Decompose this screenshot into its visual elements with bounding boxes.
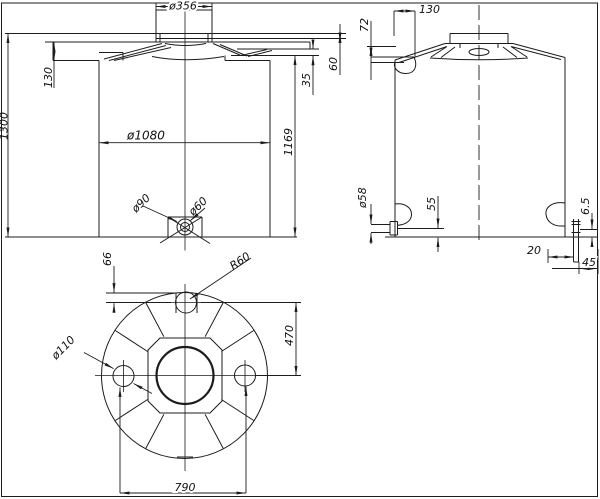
drawing-canvas: ø356 1300 130 ø1080 1169 35 60 ø90 ø60 1… [0, 0, 600, 499]
side-view: 130 72 ø58 55 6.5 20 45 [356, 3, 598, 274]
dim-35-label: 35 [300, 73, 313, 87]
dim-790-label: 790 [175, 481, 196, 494]
dim-72-label: 72 [358, 18, 371, 32]
dim-side130-label: 130 [419, 3, 440, 16]
dim-55-label: 55 [425, 197, 438, 211]
dim-dia58-label: ø58 [356, 187, 369, 209]
side-outline [371, 34, 581, 263]
dim-60-label: 60 [327, 57, 340, 71]
dim-r60-label: R60 [227, 250, 252, 273]
dim-66-label: 66 [101, 252, 114, 266]
front-view: ø356 1300 130 ø1080 1169 35 60 ø90 ø60 [0, 0, 346, 251]
dim-1169-label: 1169 [282, 128, 295, 156]
dim-dia1080-label: ø1080 [126, 129, 165, 143]
dim-20-label: 20 [527, 244, 541, 257]
dim-1300-label: 1300 [0, 112, 11, 140]
leader-dia110-b [134, 384, 153, 394]
dim-dia356-label: ø356 [168, 0, 197, 13]
dim-65-label: 6.5 [579, 198, 592, 216]
dim-dia90-label: ø90 [128, 191, 153, 215]
technical-drawing: ø356 1300 130 ø1080 1169 35 60 ø90 ø60 1… [0, 0, 600, 499]
side-extension-lines [367, 11, 598, 274]
leader-dia110-a [84, 353, 114, 369]
leader-dia90 [143, 206, 177, 222]
dim-dia60-label: ø60 [185, 194, 210, 218]
dim-dia110-label: ø110 [48, 333, 78, 363]
bottom-extension-lines [106, 266, 301, 376]
front-outline [53, 10, 310, 244]
dim-45-label: 45 [582, 256, 596, 269]
bottom-view: 66 R60 ø110 470 790 [48, 250, 301, 494]
bottom-centerlines [95, 284, 278, 471]
dim-130-label: 130 [42, 67, 55, 88]
dim-470-label: 470 [283, 325, 296, 346]
flange-ribs [115, 293, 253, 457]
